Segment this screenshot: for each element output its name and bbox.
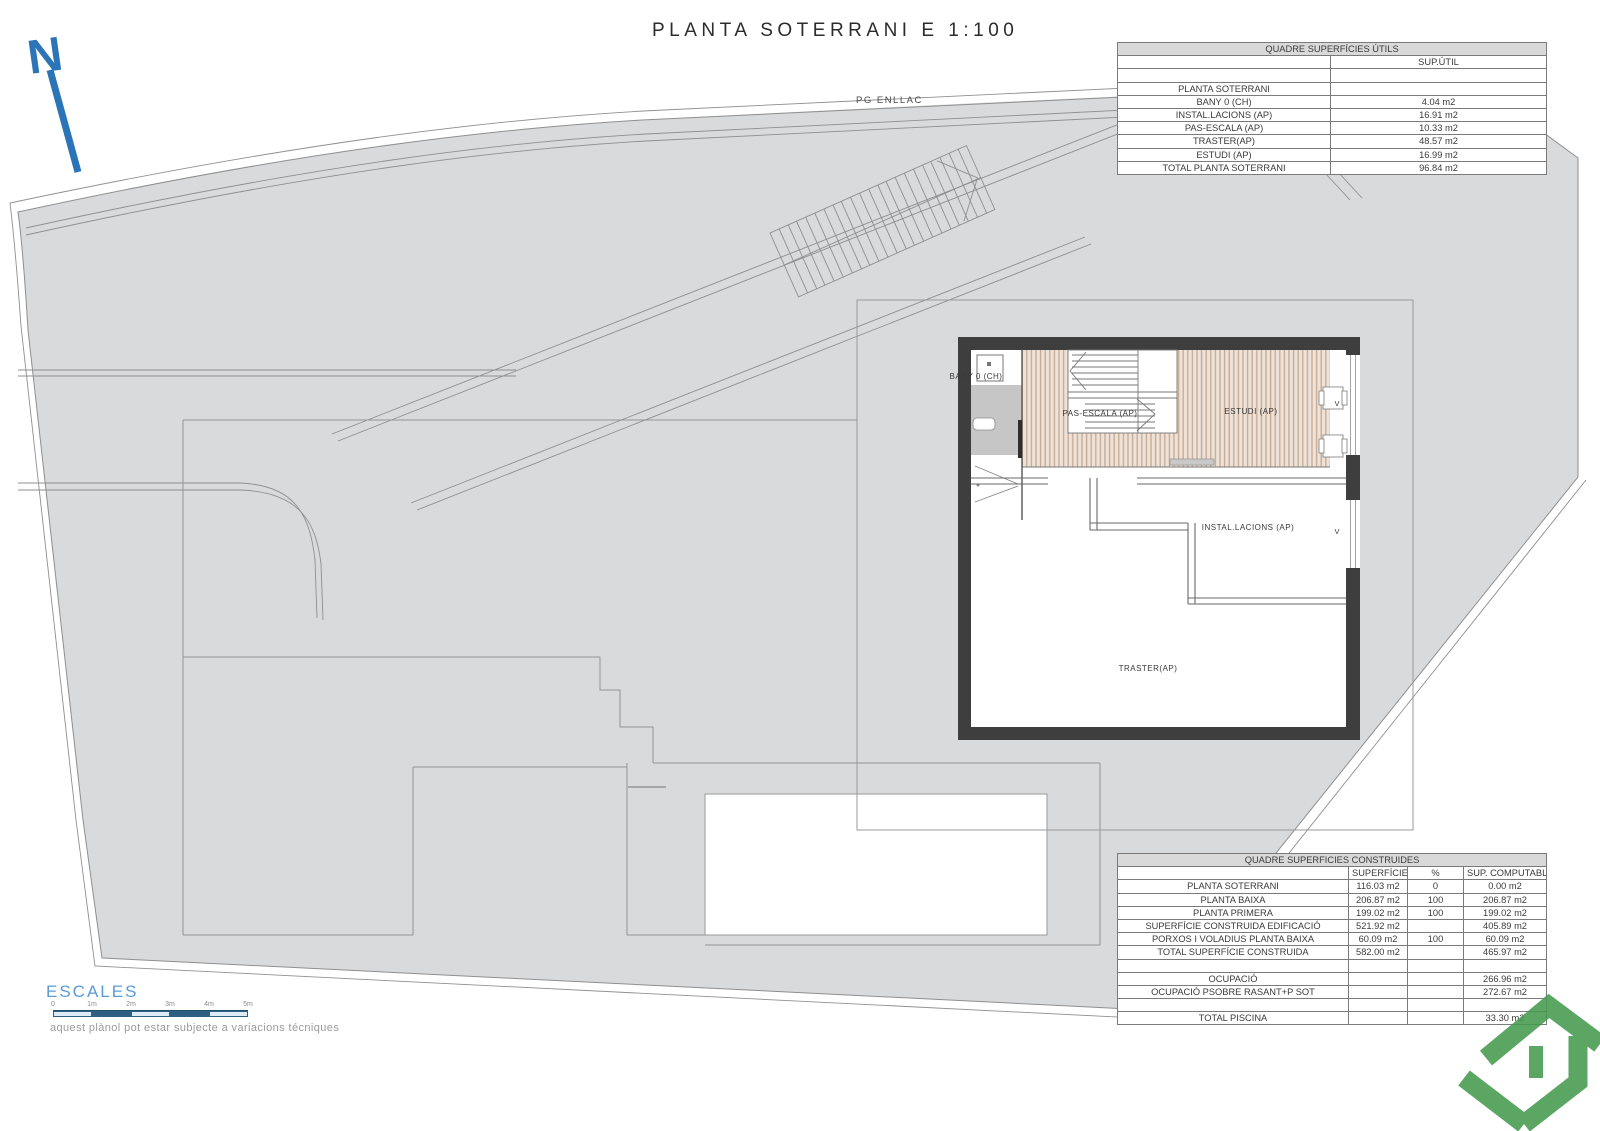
table-cell bbox=[1349, 985, 1408, 998]
table-cell: TRASTER(AP) bbox=[1118, 135, 1331, 148]
chair bbox=[1319, 435, 1347, 457]
window-label-v1: V bbox=[1334, 399, 1339, 408]
table-row: PLANTA SOTERRANI116.03 m200.00 m2 bbox=[1118, 880, 1547, 893]
table-cell bbox=[1408, 972, 1464, 985]
scale-segment bbox=[131, 1011, 170, 1017]
table-cell bbox=[1408, 985, 1464, 998]
door-leaf bbox=[1018, 420, 1022, 458]
window-right-2 bbox=[1346, 500, 1360, 568]
table-title: QUADRE SUPERFICIES CONSTRUIDES bbox=[1118, 854, 1547, 867]
table-cell: 206.87 m2 bbox=[1464, 893, 1547, 906]
table-cell: 16.91 m2 bbox=[1331, 108, 1547, 121]
north-arrow-icon: N bbox=[24, 28, 78, 172]
table-cell: SUP.ÚTIL bbox=[1331, 56, 1547, 69]
table-cell: TOTAL PLANTA SOTERRANI bbox=[1118, 161, 1331, 174]
table-cell: 521.92 m2 bbox=[1349, 919, 1408, 932]
table-cell: 272.67 m2 bbox=[1464, 985, 1547, 998]
table-cell: SUPERFÍCIE CONSTRUIDA EDIFICACIÓ bbox=[1118, 919, 1349, 932]
table-cell: % bbox=[1408, 867, 1464, 880]
table-cell: 582.00 m2 bbox=[1349, 946, 1408, 959]
table-cell: PLANTA PRIMERA bbox=[1118, 906, 1349, 919]
table-row: PORXOS I VOLADIUS PLANTA BAIXA60.09 m210… bbox=[1118, 933, 1547, 946]
scale-segment bbox=[170, 1011, 209, 1017]
scale-segment bbox=[209, 1011, 248, 1017]
scale-bar-segments bbox=[53, 1010, 248, 1018]
room-label-bany: BANY 0 (CH) bbox=[950, 372, 1003, 381]
scale-segment bbox=[92, 1011, 131, 1017]
table-cell bbox=[1331, 69, 1547, 82]
scale-tick: 0 bbox=[51, 1001, 55, 1008]
table-cell: 60.09 m2 bbox=[1464, 933, 1547, 946]
table-cell: OCUPACIÓ bbox=[1118, 972, 1349, 985]
scale-tick: 4m bbox=[204, 1001, 214, 1008]
table-cell: 266.96 m2 bbox=[1464, 972, 1547, 985]
table-cell: PORXOS I VOLADIUS PLANTA BAIXA bbox=[1118, 933, 1349, 946]
table-cell bbox=[1331, 82, 1547, 95]
chair bbox=[1319, 387, 1347, 409]
table-cell bbox=[1118, 999, 1349, 1012]
scale-tick: 1m bbox=[87, 1001, 97, 1008]
table-cell: 116.03 m2 bbox=[1349, 880, 1408, 893]
table-row: OCUPACIÓ 266.96 m2 bbox=[1118, 972, 1547, 985]
north-label: N bbox=[24, 28, 66, 85]
table-cell: 96.84 m2 bbox=[1331, 161, 1547, 174]
table-cell bbox=[1408, 959, 1464, 972]
table-cell bbox=[1464, 959, 1547, 972]
scale-segment bbox=[53, 1011, 92, 1017]
table-cell bbox=[1118, 69, 1331, 82]
table-row: ESTUDI (AP)16.99 m2 bbox=[1118, 148, 1547, 161]
threshold-mat bbox=[1170, 459, 1214, 465]
pool bbox=[705, 794, 1047, 935]
table-cell: 405.89 m2 bbox=[1464, 919, 1547, 932]
room-label-estudi: ESTUDI (AP) bbox=[1224, 407, 1277, 416]
room-label-pas-escala: PAS-ESCALA (AP) bbox=[1063, 409, 1138, 418]
table-row bbox=[1118, 69, 1547, 82]
table-row bbox=[1118, 999, 1547, 1012]
page-title: PLANTA SOTERRANI E 1:100 bbox=[652, 20, 1018, 42]
table-row: PLANTA SOTERRANI bbox=[1118, 82, 1547, 95]
building: BANY 0 (CH) PAS-ESCALA (AP) ESTUDI (AP) … bbox=[950, 337, 1360, 740]
table-cell bbox=[1349, 972, 1408, 985]
scale-bar: 01m2m3m4m5m bbox=[53, 1001, 249, 1019]
table-cell: 10.33 m2 bbox=[1331, 122, 1547, 135]
table-cell: PLANTA SOTERRANI bbox=[1118, 82, 1331, 95]
table-cell bbox=[1118, 959, 1349, 972]
table-row: PLANTA BAIXA206.87 m2100206.87 m2 bbox=[1118, 893, 1547, 906]
room-label-traster: TRASTER(AP) bbox=[1119, 664, 1178, 673]
table-row: TOTAL PISCINA 33.30 m2 bbox=[1118, 1012, 1547, 1025]
table-cell: OCUPACIÓ PSOBRE RASANT+P SOT bbox=[1118, 985, 1349, 998]
table-cell bbox=[1118, 867, 1349, 880]
scale-title: ESCALES bbox=[46, 982, 138, 1002]
table-cell: 48.57 m2 bbox=[1331, 135, 1547, 148]
table-cell: SUP. COMPUTABLE bbox=[1464, 867, 1547, 880]
table-cell: PAS-ESCALA (AP) bbox=[1118, 122, 1331, 135]
pg-enllac-label: PG ENLLAC bbox=[856, 95, 923, 106]
table-cell: 33.30 m2 bbox=[1464, 1012, 1547, 1025]
table-cell bbox=[1408, 946, 1464, 959]
table-superficies-construides: QUADRE SUPERFICIES CONSTRUIDES SUPERFÍCI… bbox=[1117, 853, 1547, 1025]
table-cell: 199.02 m2 bbox=[1349, 906, 1408, 919]
table-row: SUPERFÍCIE CONSTRUIDA EDIFICACIÓ521.92 m… bbox=[1118, 919, 1547, 932]
table-cell: SUPERFÍCIE bbox=[1349, 867, 1408, 880]
table-cell: PLANTA SOTERRANI bbox=[1118, 880, 1349, 893]
table-cell bbox=[1464, 999, 1547, 1012]
window-label-v2: V bbox=[1334, 527, 1339, 536]
table-cell bbox=[1349, 999, 1408, 1012]
table-cell bbox=[1349, 1012, 1408, 1025]
table-cell: BANY 0 (CH) bbox=[1118, 95, 1331, 108]
table-row: TOTAL SUPERFÍCIE CONSTRUIDA582.00 m2 465… bbox=[1118, 946, 1547, 959]
table-cell: 0 bbox=[1408, 880, 1464, 893]
table-row: TRASTER(AP)48.57 m2 bbox=[1118, 135, 1547, 148]
table-cell bbox=[1408, 919, 1464, 932]
wc-fixture bbox=[973, 418, 995, 430]
table-cell: 4.04 m2 bbox=[1331, 95, 1547, 108]
table-superficies-utils: QUADRE SUPERFÍCIES ÚTILS SUP.ÚTIL PLANTA… bbox=[1117, 42, 1547, 175]
table-cell bbox=[1408, 1012, 1464, 1025]
table-cell: ESTUDI (AP) bbox=[1118, 148, 1331, 161]
table-cell: TOTAL SUPERFÍCIE CONSTRUIDA bbox=[1118, 946, 1349, 959]
table-cell: 16.99 m2 bbox=[1331, 148, 1547, 161]
room-label-installacions: INSTAL.LACIONS (AP) bbox=[1202, 523, 1294, 532]
table-row: OCUPACIÓ PSOBRE RASANT+P SOT 272.67 m2 bbox=[1118, 985, 1547, 998]
table-cell bbox=[1118, 56, 1331, 69]
staircase bbox=[1068, 350, 1177, 433]
window-right-1 bbox=[1346, 355, 1360, 455]
table-row: SUPERFÍCIE%SUP. COMPUTABLE bbox=[1118, 867, 1547, 880]
table-cell: 100 bbox=[1408, 933, 1464, 946]
table-cell: PLANTA BAIXA bbox=[1118, 893, 1349, 906]
table-cell: 60.09 m2 bbox=[1349, 933, 1408, 946]
scale-tick: 2m bbox=[126, 1001, 136, 1008]
table-cell: 100 bbox=[1408, 906, 1464, 919]
disclaimer-text: aquest plànol pot estar subjecte a varia… bbox=[50, 1022, 339, 1034]
table-row bbox=[1118, 959, 1547, 972]
table-cell: 199.02 m2 bbox=[1464, 906, 1547, 919]
table-cell: 206.87 m2 bbox=[1349, 893, 1408, 906]
table-cell: 0.00 m2 bbox=[1464, 880, 1547, 893]
table-row: INSTAL.LACIONS (AP)16.91 m2 bbox=[1118, 108, 1547, 121]
table-row: BANY 0 (CH)4.04 m2 bbox=[1118, 95, 1547, 108]
table-cell bbox=[1349, 959, 1408, 972]
table-row: PAS-ESCALA (AP)10.33 m2 bbox=[1118, 122, 1547, 135]
table-row: PLANTA PRIMERA199.02 m2100199.02 m2 bbox=[1118, 906, 1547, 919]
table-cell: 465.97 m2 bbox=[1464, 946, 1547, 959]
scale-tick: 3m bbox=[165, 1001, 175, 1008]
table-cell bbox=[1408, 999, 1464, 1012]
table-title: QUADRE SUPERFÍCIES ÚTILS bbox=[1118, 43, 1547, 56]
table-row: SUP.ÚTIL bbox=[1118, 56, 1547, 69]
table-cell: INSTAL.LACIONS (AP) bbox=[1118, 108, 1331, 121]
scale-tick: 5m bbox=[243, 1001, 253, 1008]
table-cell: 100 bbox=[1408, 893, 1464, 906]
table-cell: TOTAL PISCINA bbox=[1118, 1012, 1349, 1025]
table-row: TOTAL PLANTA SOTERRANI96.84 m2 bbox=[1118, 161, 1547, 174]
